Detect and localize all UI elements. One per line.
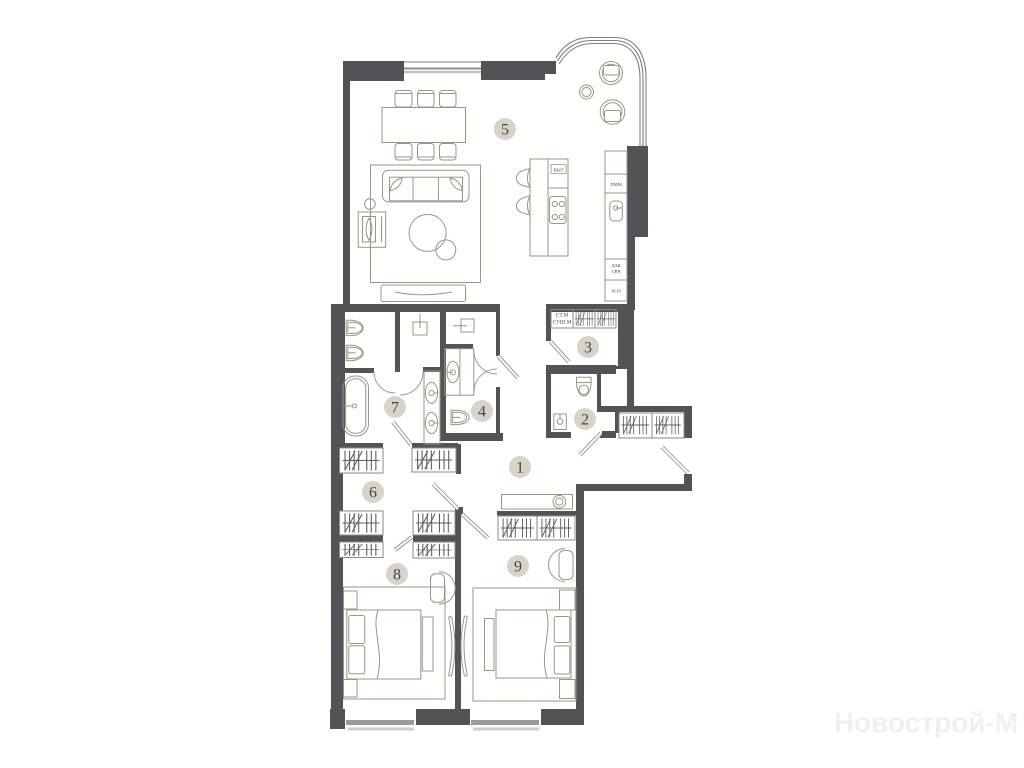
svg-text:ПММ: ПММ — [610, 182, 622, 187]
svg-text:8: 8 — [393, 567, 401, 584]
svg-text:9: 9 — [514, 559, 522, 576]
svg-text:Д/Ш: Д/Ш — [612, 263, 621, 268]
svg-text:2: 2 — [581, 412, 589, 429]
svg-text:Новострой-М: Новострой-М — [834, 707, 1018, 738]
svg-text:СУШ.М: СУШ.М — [553, 320, 572, 326]
svg-text:СТ.М: СТ.М — [556, 313, 569, 319]
svg-text:1: 1 — [516, 460, 524, 477]
svg-text:6: 6 — [369, 485, 377, 502]
svg-text:3: 3 — [584, 340, 592, 357]
svg-text:7: 7 — [391, 400, 399, 417]
svg-text:ВЫТ: ВЫТ — [554, 168, 564, 173]
svg-text:ХОЛ: ХОЛ — [611, 289, 620, 294]
svg-text:4: 4 — [478, 404, 486, 421]
svg-text:5: 5 — [501, 122, 509, 139]
svg-text:СВЧ: СВЧ — [612, 269, 621, 274]
